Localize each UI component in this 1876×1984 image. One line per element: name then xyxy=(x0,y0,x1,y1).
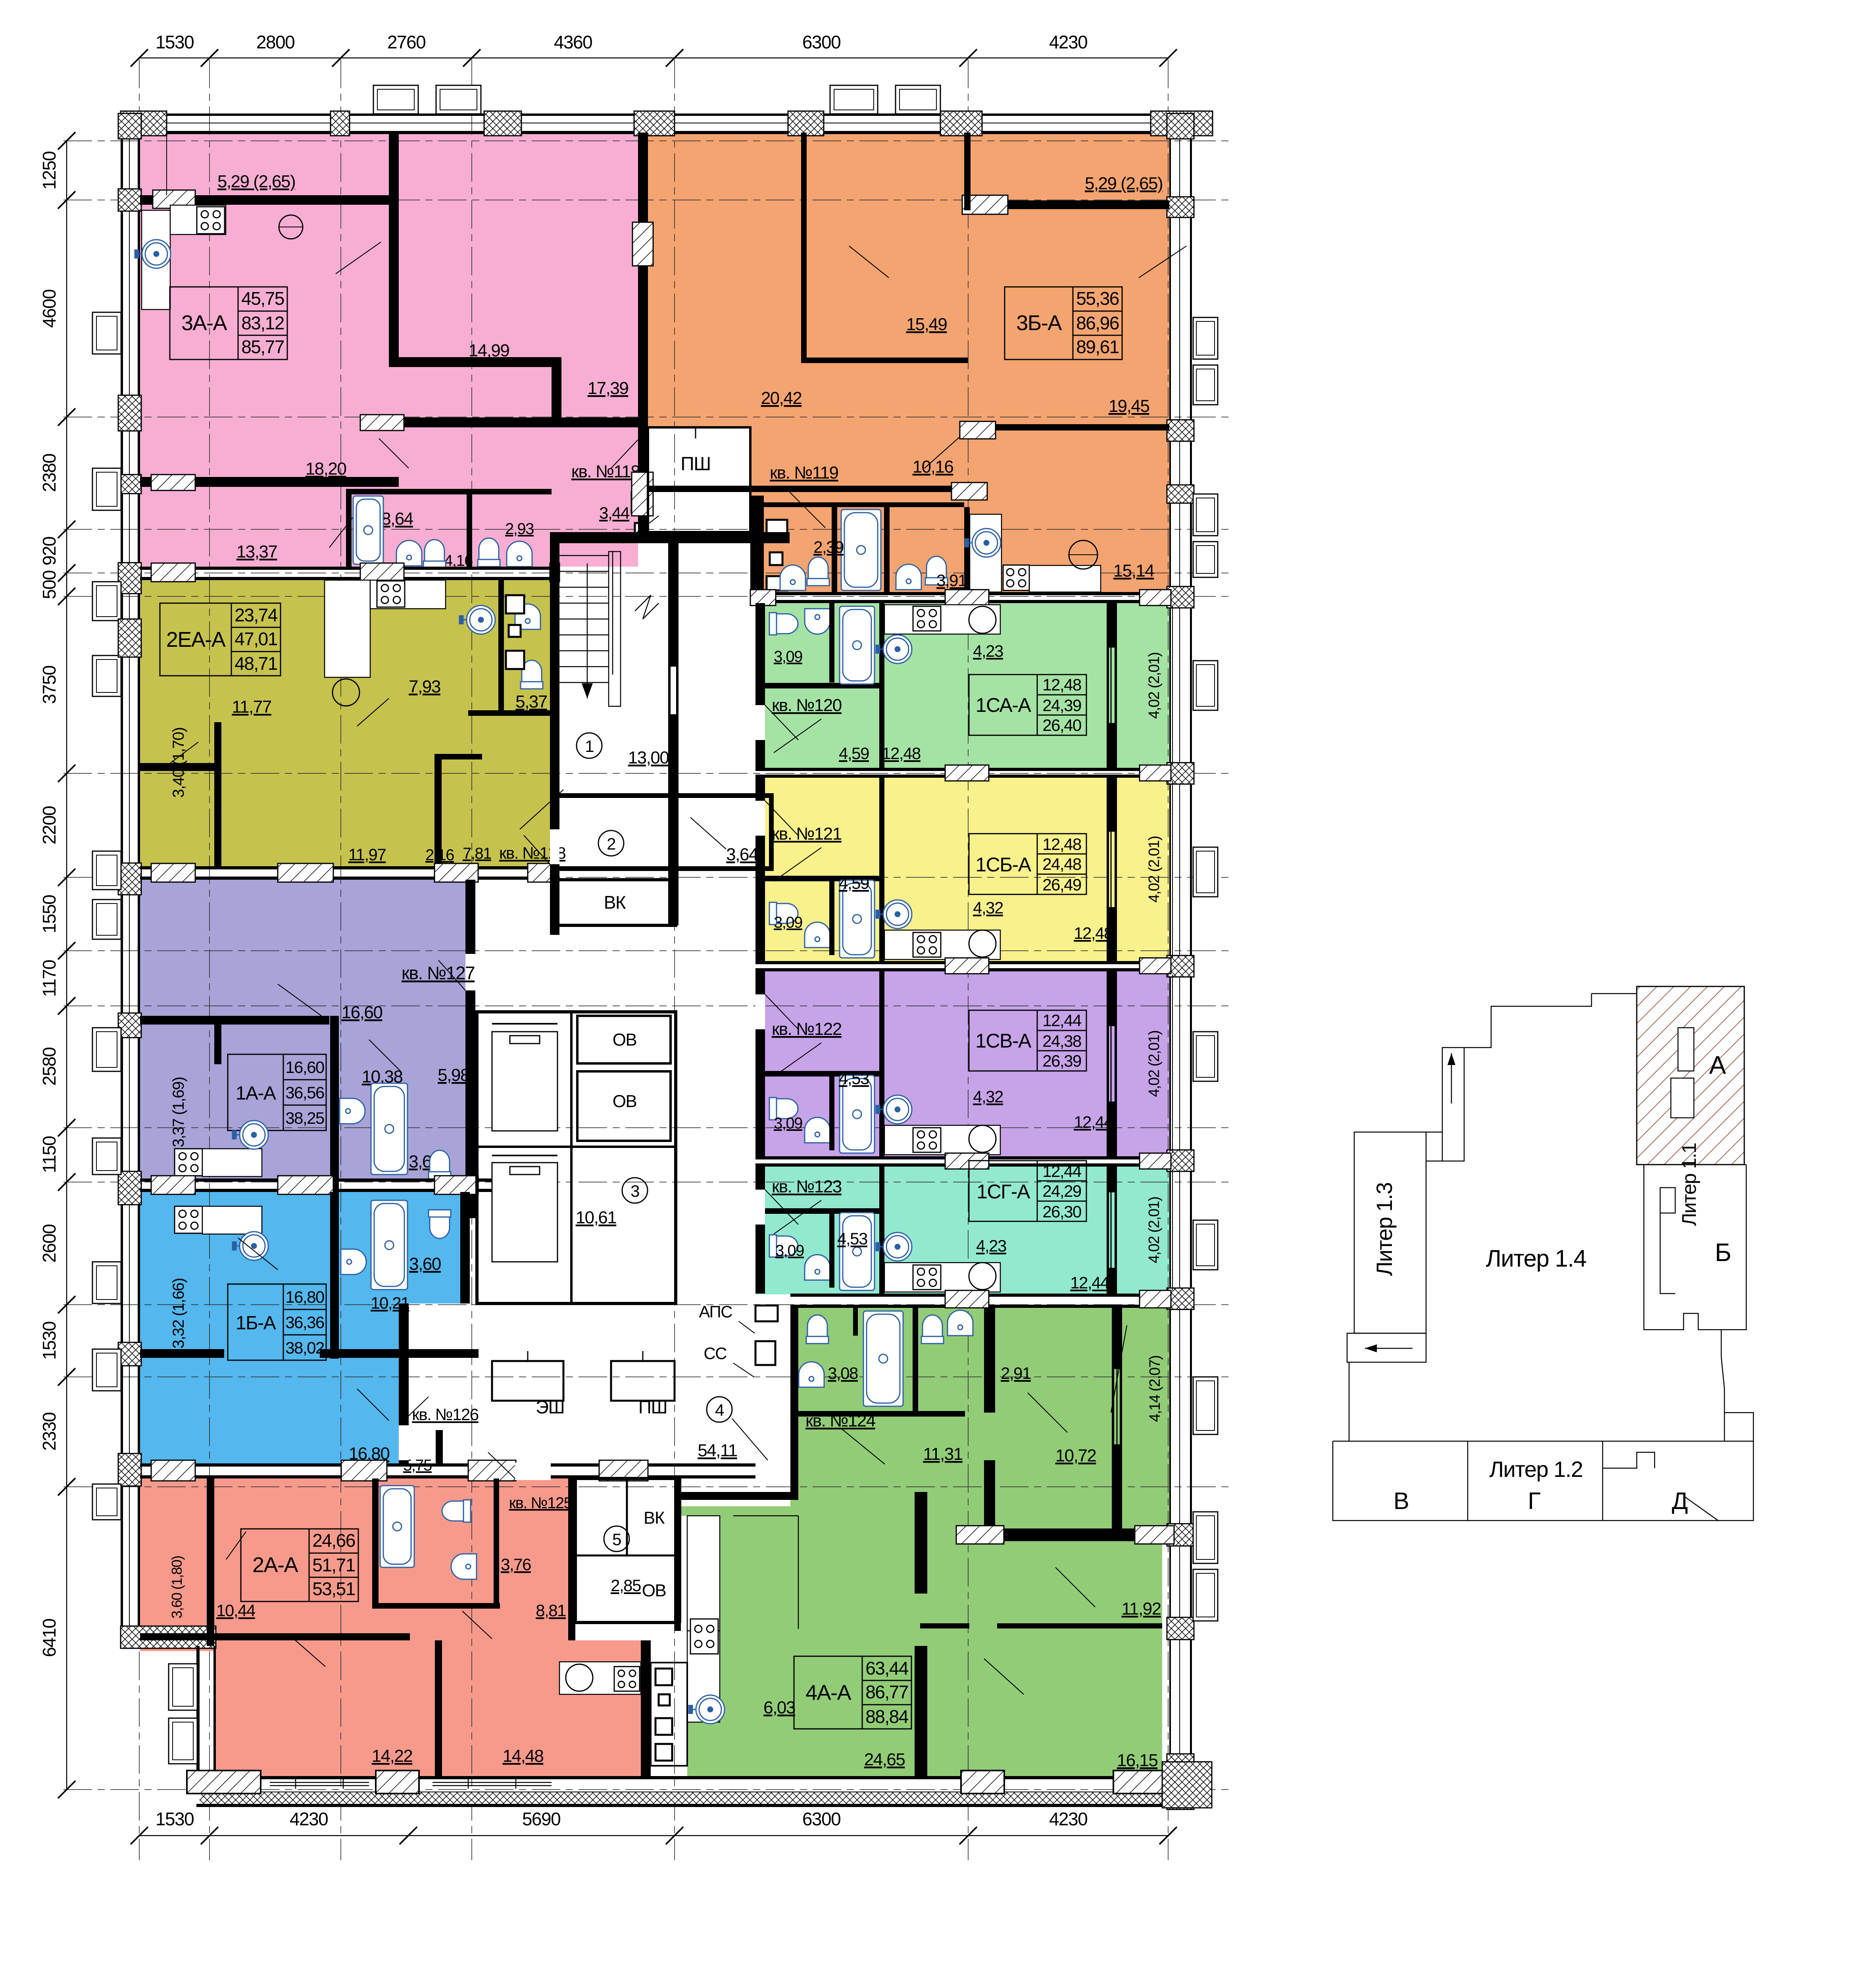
svg-text:2580: 2580 xyxy=(39,1048,60,1086)
svg-text:4,02 (2,01): 4,02 (2,01) xyxy=(1146,1197,1163,1263)
svg-text:10,21: 10,21 xyxy=(371,1294,409,1312)
svg-text:17,39: 17,39 xyxy=(588,379,629,398)
svg-text:10,44: 10,44 xyxy=(216,1601,256,1620)
svg-text:2ЕА-А: 2ЕА-А xyxy=(166,628,226,652)
svg-text:54,11: 54,11 xyxy=(698,1441,737,1460)
svg-text:3,09: 3,09 xyxy=(775,1242,804,1259)
svg-text:920: 920 xyxy=(39,537,60,565)
svg-text:6300: 6300 xyxy=(802,32,840,52)
svg-text:4,32: 4,32 xyxy=(973,898,1003,917)
svg-text:3,44: 3,44 xyxy=(599,504,630,522)
svg-text:1: 1 xyxy=(585,737,594,756)
svg-text:11,77: 11,77 xyxy=(232,697,271,717)
svg-text:4600: 4600 xyxy=(39,290,60,328)
svg-text:4230: 4230 xyxy=(1049,1809,1087,1829)
svg-text:11,97: 11,97 xyxy=(348,845,386,864)
svg-text:4,53: 4,53 xyxy=(839,1069,869,1088)
svg-text:1250: 1250 xyxy=(39,152,60,190)
svg-text:38,25: 38,25 xyxy=(285,1109,324,1127)
svg-text:4,23: 4,23 xyxy=(976,1236,1006,1255)
svg-text:1СГ-А: 1СГ-А xyxy=(976,1180,1030,1203)
svg-text:6300: 6300 xyxy=(802,1809,840,1829)
svg-text:6410: 6410 xyxy=(39,1619,60,1657)
svg-text:4360: 4360 xyxy=(554,32,592,52)
svg-text:1170: 1170 xyxy=(39,960,60,997)
svg-text:51,71: 51,71 xyxy=(312,1555,355,1575)
svg-text:15,49: 15,49 xyxy=(906,315,947,334)
svg-text:ОВ: ОВ xyxy=(642,1581,666,1600)
svg-text:3,60: 3,60 xyxy=(409,1254,441,1274)
svg-text:ВК: ВК xyxy=(604,892,626,913)
svg-text:Г: Г xyxy=(1528,1488,1541,1514)
svg-text:2,85: 2,85 xyxy=(611,1576,641,1595)
svg-text:1530: 1530 xyxy=(39,1322,60,1360)
svg-text:24,39: 24,39 xyxy=(1042,696,1081,715)
svg-text:26,49: 26,49 xyxy=(1042,875,1081,894)
svg-text:23,74: 23,74 xyxy=(234,605,278,625)
svg-text:12,44: 12,44 xyxy=(1070,1273,1109,1292)
svg-text:26,30: 26,30 xyxy=(1042,1202,1081,1221)
svg-text:89,61: 89,61 xyxy=(1076,336,1119,357)
svg-text:3Б-А: 3Б-А xyxy=(1016,311,1062,335)
svg-text:24,65: 24,65 xyxy=(864,1750,905,1769)
svg-text:АПС: АПС xyxy=(699,1302,732,1321)
svg-text:83,12: 83,12 xyxy=(241,313,284,333)
svg-text:11,92: 11,92 xyxy=(1121,1599,1161,1619)
svg-text:36,36: 36,36 xyxy=(285,1313,324,1332)
svg-text:3750: 3750 xyxy=(39,666,60,704)
svg-text:кв. №126: кв. №126 xyxy=(412,1405,478,1424)
svg-text:3,60 (1,80): 3,60 (1,80) xyxy=(169,1556,185,1619)
svg-text:5,98: 5,98 xyxy=(438,1065,469,1085)
svg-text:86,96: 86,96 xyxy=(1076,313,1119,333)
svg-text:4,59: 4,59 xyxy=(839,744,869,763)
svg-text:1СА-А: 1СА-А xyxy=(976,694,1032,716)
svg-text:10,72: 10,72 xyxy=(1055,1446,1096,1465)
svg-text:12,48: 12,48 xyxy=(1042,675,1081,694)
svg-text:53,51: 53,51 xyxy=(312,1578,355,1599)
svg-text:3,09: 3,09 xyxy=(774,648,802,665)
svg-text:4,59: 4,59 xyxy=(839,874,869,892)
svg-text:4,02 (2,01): 4,02 (2,01) xyxy=(1146,652,1163,719)
svg-text:6,03: 6,03 xyxy=(763,1698,795,1717)
svg-text:1150: 1150 xyxy=(39,1136,60,1173)
svg-text:Литер 1.2: Литер 1.2 xyxy=(1489,1457,1582,1482)
svg-text:Д: Д xyxy=(1672,1488,1688,1514)
svg-text:3,09: 3,09 xyxy=(774,914,802,931)
svg-text:55,36: 55,36 xyxy=(1076,288,1119,309)
svg-text:3,37 (1,69): 3,37 (1,69) xyxy=(170,1077,187,1148)
svg-text:Литер 1.3: Литер 1.3 xyxy=(1372,1182,1397,1276)
svg-text:26,39: 26,39 xyxy=(1042,1052,1081,1070)
svg-text:2,91: 2,91 xyxy=(1001,1364,1031,1382)
svg-text:24,66: 24,66 xyxy=(312,1530,355,1551)
svg-text:кв. №118: кв. №118 xyxy=(571,462,640,481)
svg-text:11,31: 11,31 xyxy=(923,1444,962,1464)
svg-text:26,40: 26,40 xyxy=(1042,716,1081,734)
svg-text:85,77: 85,77 xyxy=(241,336,284,357)
svg-text:16,60: 16,60 xyxy=(342,1003,383,1022)
svg-text:кв. №123: кв. №123 xyxy=(772,1177,842,1196)
svg-text:Литер 1.1: Литер 1.1 xyxy=(1678,1143,1700,1226)
svg-text:кв. №124: кв. №124 xyxy=(805,1411,876,1430)
svg-text:14,99: 14,99 xyxy=(469,341,509,360)
svg-text:2380: 2380 xyxy=(39,454,60,492)
svg-text:18,20: 18,20 xyxy=(306,459,346,479)
svg-text:24,38: 24,38 xyxy=(1042,1032,1081,1050)
svg-text:А: А xyxy=(1709,1051,1726,1079)
svg-text:2600: 2600 xyxy=(39,1225,60,1263)
svg-text:ЭШ: ЭШ xyxy=(536,1397,564,1417)
svg-text:2800: 2800 xyxy=(256,32,294,52)
svg-text:3,64: 3,64 xyxy=(726,845,758,864)
svg-text:3,09: 3,09 xyxy=(774,1115,802,1132)
svg-text:12,44: 12,44 xyxy=(1042,1011,1082,1030)
svg-text:В: В xyxy=(1394,1488,1409,1514)
svg-text:16,15: 16,15 xyxy=(1117,1751,1158,1770)
svg-text:ПШ: ПШ xyxy=(638,1397,667,1417)
svg-text:7,93: 7,93 xyxy=(409,677,440,696)
svg-text:3,32 (1,66): 3,32 (1,66) xyxy=(170,1278,187,1349)
svg-text:7,81: 7,81 xyxy=(463,845,491,862)
svg-text:63,44: 63,44 xyxy=(865,1658,909,1678)
svg-text:1СБ-А: 1СБ-А xyxy=(975,854,1031,876)
svg-text:4,32: 4,32 xyxy=(973,1087,1003,1106)
svg-text:4: 4 xyxy=(715,1401,724,1419)
svg-text:86,77: 86,77 xyxy=(865,1682,908,1702)
svg-text:12,44: 12,44 xyxy=(1074,1113,1113,1131)
svg-text:3,76: 3,76 xyxy=(501,1555,531,1574)
svg-text:38,02: 38,02 xyxy=(285,1338,324,1357)
svg-text:ОВ: ОВ xyxy=(613,1030,637,1050)
svg-text:5,37: 5,37 xyxy=(515,692,547,711)
svg-text:2200: 2200 xyxy=(39,806,60,844)
svg-text:8,81: 8,81 xyxy=(536,1601,566,1620)
svg-text:12,48: 12,48 xyxy=(882,744,921,763)
svg-text:24,29: 24,29 xyxy=(1042,1182,1081,1200)
svg-text:2: 2 xyxy=(607,834,615,853)
svg-text:45,75: 45,75 xyxy=(241,288,284,309)
svg-text:2А-А: 2А-А xyxy=(252,1553,298,1577)
svg-text:кв. №120: кв. №120 xyxy=(772,696,842,715)
svg-text:5,29 (2,65): 5,29 (2,65) xyxy=(1085,174,1163,193)
svg-text:4,14 (2,07): 4,14 (2,07) xyxy=(1147,1355,1163,1422)
svg-text:1550: 1550 xyxy=(39,895,60,933)
svg-text:13,00: 13,00 xyxy=(628,748,669,767)
svg-text:8,64: 8,64 xyxy=(381,509,413,529)
svg-text:Литер 1.4: Литер 1.4 xyxy=(1486,1245,1586,1272)
svg-text:4,02 (2,01): 4,02 (2,01) xyxy=(1146,1030,1163,1097)
svg-text:кв. №121: кв. №121 xyxy=(772,824,842,844)
svg-text:4А-А: 4А-А xyxy=(805,1681,852,1705)
svg-text:ОВ: ОВ xyxy=(613,1092,637,1111)
svg-text:16,80: 16,80 xyxy=(285,1288,324,1306)
svg-text:4230: 4230 xyxy=(1049,32,1087,52)
svg-text:кв. №127: кв. №127 xyxy=(402,963,475,983)
svg-text:2,93: 2,93 xyxy=(505,520,534,538)
svg-text:5690: 5690 xyxy=(522,1809,560,1829)
svg-text:4,53: 4,53 xyxy=(837,1229,867,1248)
svg-text:4,02 (2,01): 4,02 (2,01) xyxy=(1146,836,1163,902)
svg-text:2,39: 2,39 xyxy=(813,538,844,556)
svg-text:2760: 2760 xyxy=(387,32,425,52)
svg-text:ВК: ВК xyxy=(644,1508,665,1528)
svg-text:СС: СС xyxy=(703,1344,727,1363)
svg-text:кв. №119: кв. №119 xyxy=(770,463,838,483)
svg-text:36,56: 36,56 xyxy=(285,1083,324,1102)
svg-text:48,71: 48,71 xyxy=(234,653,277,674)
svg-text:10,61: 10,61 xyxy=(576,1208,617,1227)
svg-text:88,84: 88,84 xyxy=(865,1706,909,1727)
svg-text:кв. №125: кв. №125 xyxy=(509,1494,572,1512)
svg-text:12,48: 12,48 xyxy=(1042,835,1081,854)
svg-text:5: 5 xyxy=(612,1530,621,1549)
svg-text:12,44: 12,44 xyxy=(1042,1162,1082,1180)
svg-text:14,48: 14,48 xyxy=(503,1746,544,1766)
svg-text:3,91: 3,91 xyxy=(936,571,967,590)
svg-text:12,48: 12,48 xyxy=(1074,924,1113,942)
svg-text:4230: 4230 xyxy=(290,1809,328,1829)
svg-text:14,22: 14,22 xyxy=(372,1746,413,1766)
svg-text:1Б-А: 1Б-А xyxy=(236,1313,276,1334)
svg-text:3: 3 xyxy=(630,1182,639,1200)
svg-text:10,16: 10,16 xyxy=(913,457,953,477)
svg-text:13,37: 13,37 xyxy=(236,542,277,561)
svg-text:15,14: 15,14 xyxy=(1113,561,1155,581)
svg-text:3,40 (1,70): 3,40 (1,70) xyxy=(170,728,187,798)
svg-text:4,23: 4,23 xyxy=(973,642,1003,660)
svg-text:1СВ-А: 1СВ-А xyxy=(975,1030,1032,1052)
svg-text:20,42: 20,42 xyxy=(761,388,802,408)
svg-text:кв. №122: кв. №122 xyxy=(772,1019,842,1039)
svg-text:19,45: 19,45 xyxy=(1109,396,1149,416)
svg-text:3,08: 3,08 xyxy=(828,1364,858,1382)
svg-text:3А-А: 3А-А xyxy=(181,311,227,335)
svg-text:47,01: 47,01 xyxy=(234,629,277,649)
svg-text:5,29 (2,65): 5,29 (2,65) xyxy=(217,172,295,191)
svg-text:ПШ: ПШ xyxy=(680,454,711,475)
svg-text:2330: 2330 xyxy=(39,1413,60,1451)
svg-text:16,60: 16,60 xyxy=(285,1058,324,1077)
svg-text:500: 500 xyxy=(39,571,60,599)
svg-text:Б: Б xyxy=(1715,1238,1731,1267)
svg-text:24,48: 24,48 xyxy=(1042,855,1081,873)
svg-text:1530: 1530 xyxy=(156,32,194,52)
svg-text:1530: 1530 xyxy=(156,1809,194,1829)
svg-text:1А-А: 1А-А xyxy=(236,1083,276,1104)
